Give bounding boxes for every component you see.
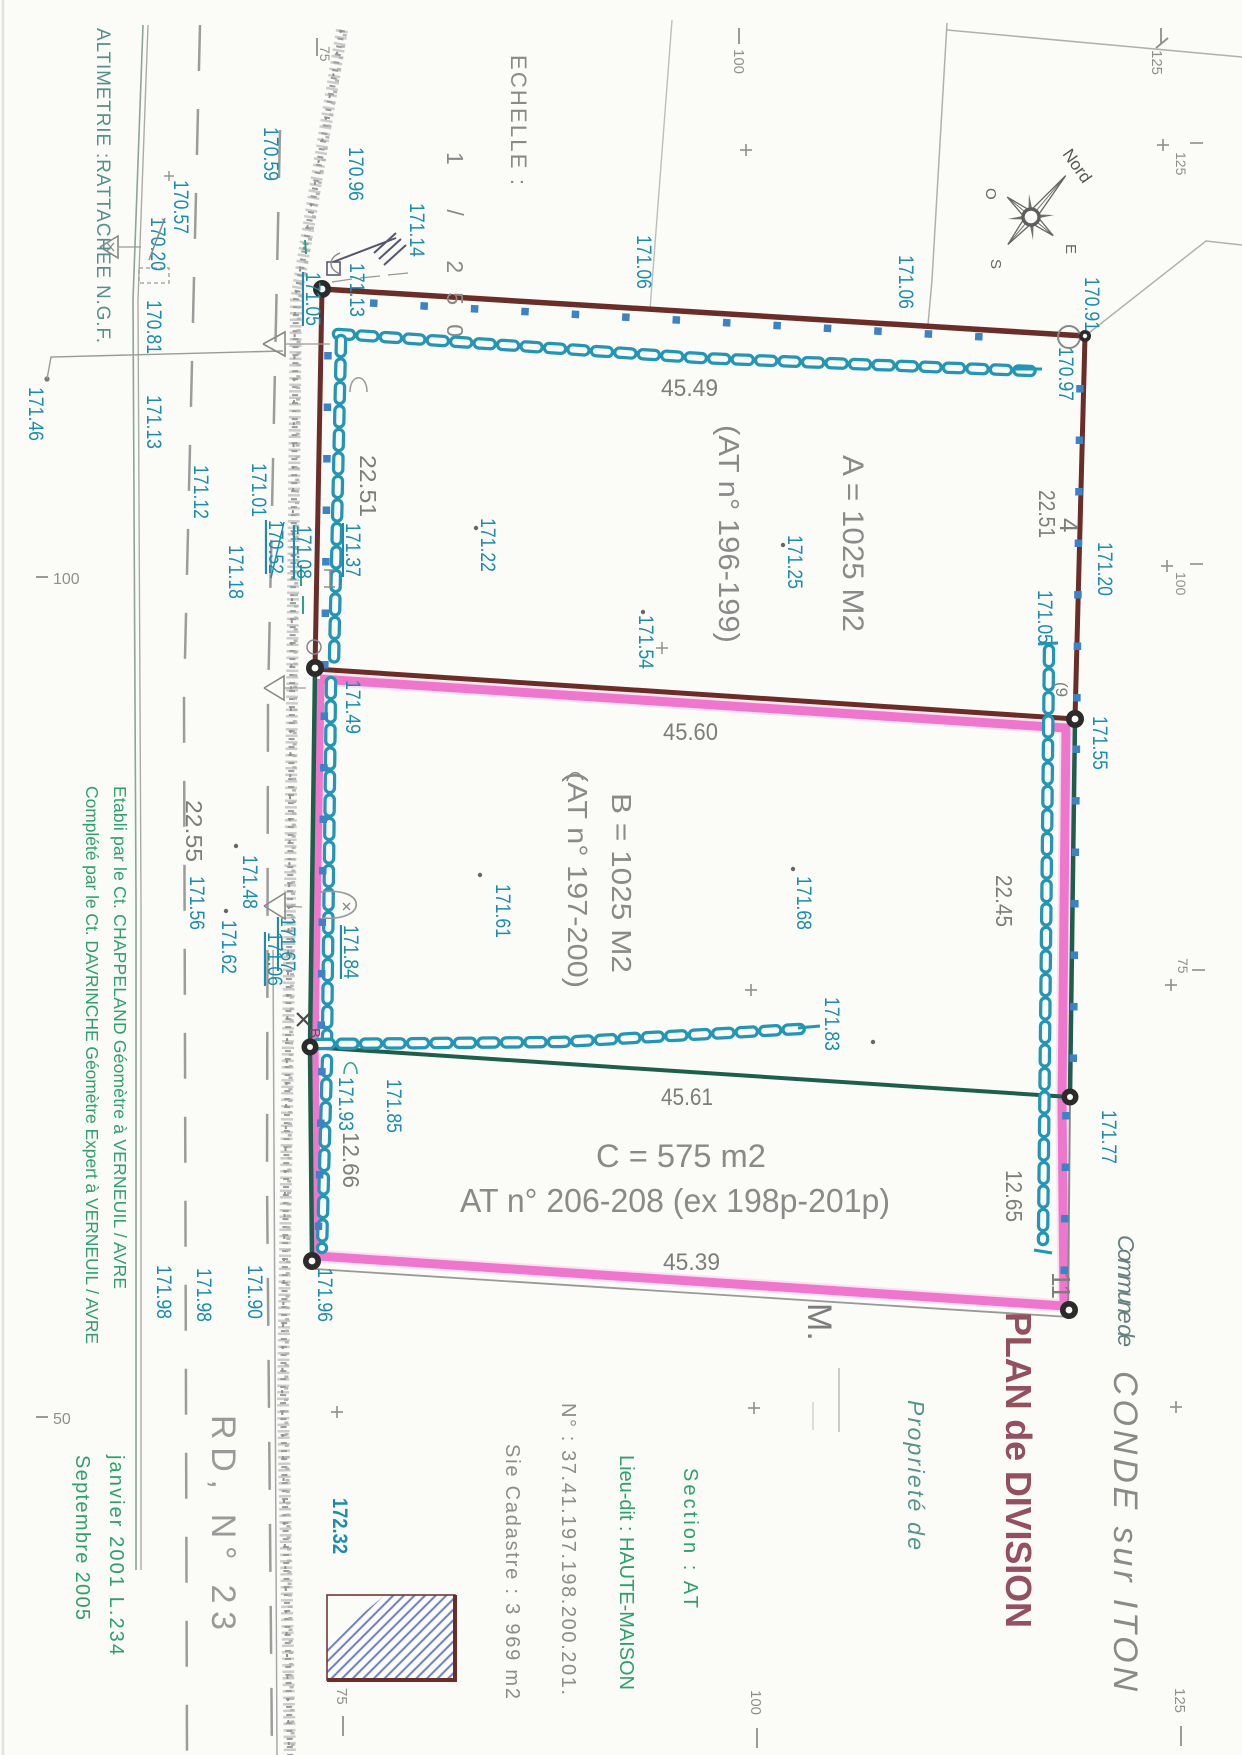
svg-text:171.48: 171.48 [238, 855, 261, 909]
svg-text:C = 575 m2: C = 575 m2 [596, 1138, 766, 1174]
svg-text:171.61: 171.61 [491, 884, 514, 938]
svg-text:100: 100 [1173, 572, 1189, 596]
svg-text:171.98: 171.98 [192, 1268, 215, 1322]
svg-text:171.12: 171.12 [189, 465, 212, 519]
svg-text:1 / 250: 1 / 250 [442, 152, 468, 337]
svg-text:171.83: 171.83 [820, 997, 843, 1051]
svg-text:170.81: 170.81 [142, 300, 165, 354]
svg-text:50: 50 [53, 1411, 71, 1428]
svg-text:Etabli par le Ct. CHAPPELAND: Etabli par le Ct. CHAPPELAND Géomètre à … [110, 786, 130, 1289]
svg-text:171.77: 171.77 [1097, 1110, 1120, 1164]
svg-text:M.: M. [800, 1303, 838, 1341]
svg-text:Commune de: Commune de [1113, 1235, 1139, 1347]
svg-text:(AT n° 196-199): (AT n° 196-199) [712, 425, 744, 643]
svg-text:CONDE sur ITON: CONDE sur ITON [1106, 1371, 1144, 1691]
svg-text:Septembre 2005: Septembre 2005 [71, 1455, 93, 1620]
svg-text:45.49: 45.49 [661, 375, 718, 402]
svg-text:125: 125 [1173, 152, 1189, 176]
svg-text:45.60: 45.60 [663, 719, 718, 746]
svg-text:11: 11 [1046, 1272, 1076, 1299]
svg-text:ECHELLE :: ECHELLE : [506, 55, 531, 185]
svg-text:Lieu-dit : HAUTE-MAISON: Lieu-dit : HAUTE-MAISON [615, 1455, 637, 1690]
svg-text:22.45: 22.45 [991, 875, 1017, 927]
svg-text:E: E [1062, 244, 1079, 254]
svg-text:75: 75 [1175, 958, 1191, 974]
svg-text:N° : 37.41.197.198.200.201.: N° : 37.41.197.198.200.201. [557, 1403, 579, 1695]
svg-text:171.85: 171.85 [382, 1079, 405, 1133]
svg-text:125: 125 [1171, 1688, 1188, 1713]
svg-text:171.46: 171.46 [24, 387, 47, 441]
svg-text:171.05: 171.05 [1033, 590, 1056, 644]
svg-text:171.84: 171.84 [339, 925, 362, 979]
svg-text:45.39: 45.39 [663, 1249, 720, 1276]
svg-text:171.06: 171.06 [263, 932, 286, 986]
svg-text:171.98: 171.98 [152, 1265, 175, 1319]
svg-text:Proprieté de: Proprieté de [903, 1400, 929, 1550]
svg-text:171.14: 171.14 [405, 203, 428, 257]
svg-text:171.54: 171.54 [634, 615, 657, 669]
svg-text:janvier 2001 L.234: janvier 2001 L.234 [105, 1454, 127, 1655]
svg-text:171.06: 171.06 [894, 255, 917, 309]
svg-text:100: 100 [730, 49, 747, 74]
svg-text:RD, N° 23: RD, N° 23 [204, 1415, 242, 1630]
svg-text:Section : AT: Section : AT [679, 1468, 701, 1608]
svg-text:171.68: 171.68 [792, 876, 815, 930]
svg-text:100: 100 [53, 571, 80, 588]
svg-text:O: O [982, 188, 999, 200]
svg-text:171.62: 171.62 [217, 920, 240, 974]
svg-text:171.01: 171.01 [247, 463, 270, 517]
svg-text:170.59: 170.59 [259, 127, 282, 181]
svg-text:4: 4 [1054, 518, 1084, 532]
svg-text:S: S [987, 259, 1004, 269]
svg-text:171.90: 171.90 [243, 1265, 266, 1319]
svg-text:45.61: 45.61 [661, 1084, 713, 1111]
svg-text:ALTIMETRIE :RATTACHEE N.G.F.: ALTIMETRIE :RATTACHEE N.G.F. [92, 28, 113, 343]
svg-text:Complété par le Ct. DAVRINCHE: Complété par le Ct. DAVRINCHE Géomètre E… [82, 786, 102, 1344]
svg-text:22.51: 22.51 [355, 455, 381, 517]
svg-text:170.57: 170.57 [169, 180, 192, 234]
svg-text:A = 1025 M2: A = 1025 M2 [836, 455, 869, 632]
svg-text:171.96: 171.96 [313, 1268, 336, 1322]
svg-text:170.96: 170.96 [344, 147, 367, 201]
svg-text:171.25: 171.25 [783, 535, 806, 589]
svg-text:171.93: 171.93 [334, 1077, 357, 1131]
svg-text:171.55: 171.55 [1088, 716, 1111, 770]
svg-text:171.08: 171.08 [292, 525, 315, 579]
svg-text:170.20: 170.20 [146, 217, 169, 271]
svg-text:170.52: 170.52 [264, 520, 287, 574]
svg-text:AT n° 206-208 (ex 198p-201p): AT n° 206-208 (ex 198p-201p) [460, 1182, 890, 1219]
svg-text:171.06: 171.06 [632, 235, 655, 289]
svg-text:12.65: 12.65 [1001, 1170, 1027, 1222]
svg-text:75: 75 [317, 46, 333, 62]
svg-text:171.13: 171.13 [345, 263, 368, 317]
svg-text:171.05: 171.05 [301, 272, 324, 326]
svg-text:100: 100 [747, 1690, 764, 1715]
svg-text:172.32: 172.32 [328, 1498, 351, 1554]
svg-text:170.91: 170.91 [1080, 277, 1103, 331]
svg-text:22.55: 22.55 [181, 800, 207, 862]
svg-text:B: B [306, 1028, 323, 1038]
svg-text:PLAN de DIVISION: PLAN de DIVISION [998, 1312, 1039, 1628]
svg-text:(AT n° 197-200): (AT n° 197-200) [562, 772, 593, 988]
svg-text:75: 75 [333, 1688, 350, 1705]
svg-text:171.37: 171.37 [341, 523, 364, 577]
svg-text:171.22: 171.22 [476, 518, 499, 572]
svg-text:(9: (9 [1052, 682, 1071, 697]
svg-text:171.49: 171.49 [341, 680, 364, 734]
svg-text:171.20: 171.20 [1093, 542, 1116, 596]
svg-text:125: 125 [1148, 50, 1165, 75]
svg-text:12.66: 12.66 [338, 1132, 364, 1188]
svg-text:171.56: 171.56 [185, 876, 208, 930]
svg-text:B = 1025 M2: B = 1025 M2 [606, 793, 637, 973]
svg-text:Nord: Nord [1059, 145, 1096, 186]
svg-text:Sie Cadastre : 3 969 m2: Sie Cadastre : 3 969 m2 [501, 1444, 523, 1699]
svg-text:170.97: 170.97 [1054, 347, 1077, 401]
svg-text:171.18: 171.18 [224, 545, 247, 599]
svg-text:171.13: 171.13 [142, 395, 165, 449]
